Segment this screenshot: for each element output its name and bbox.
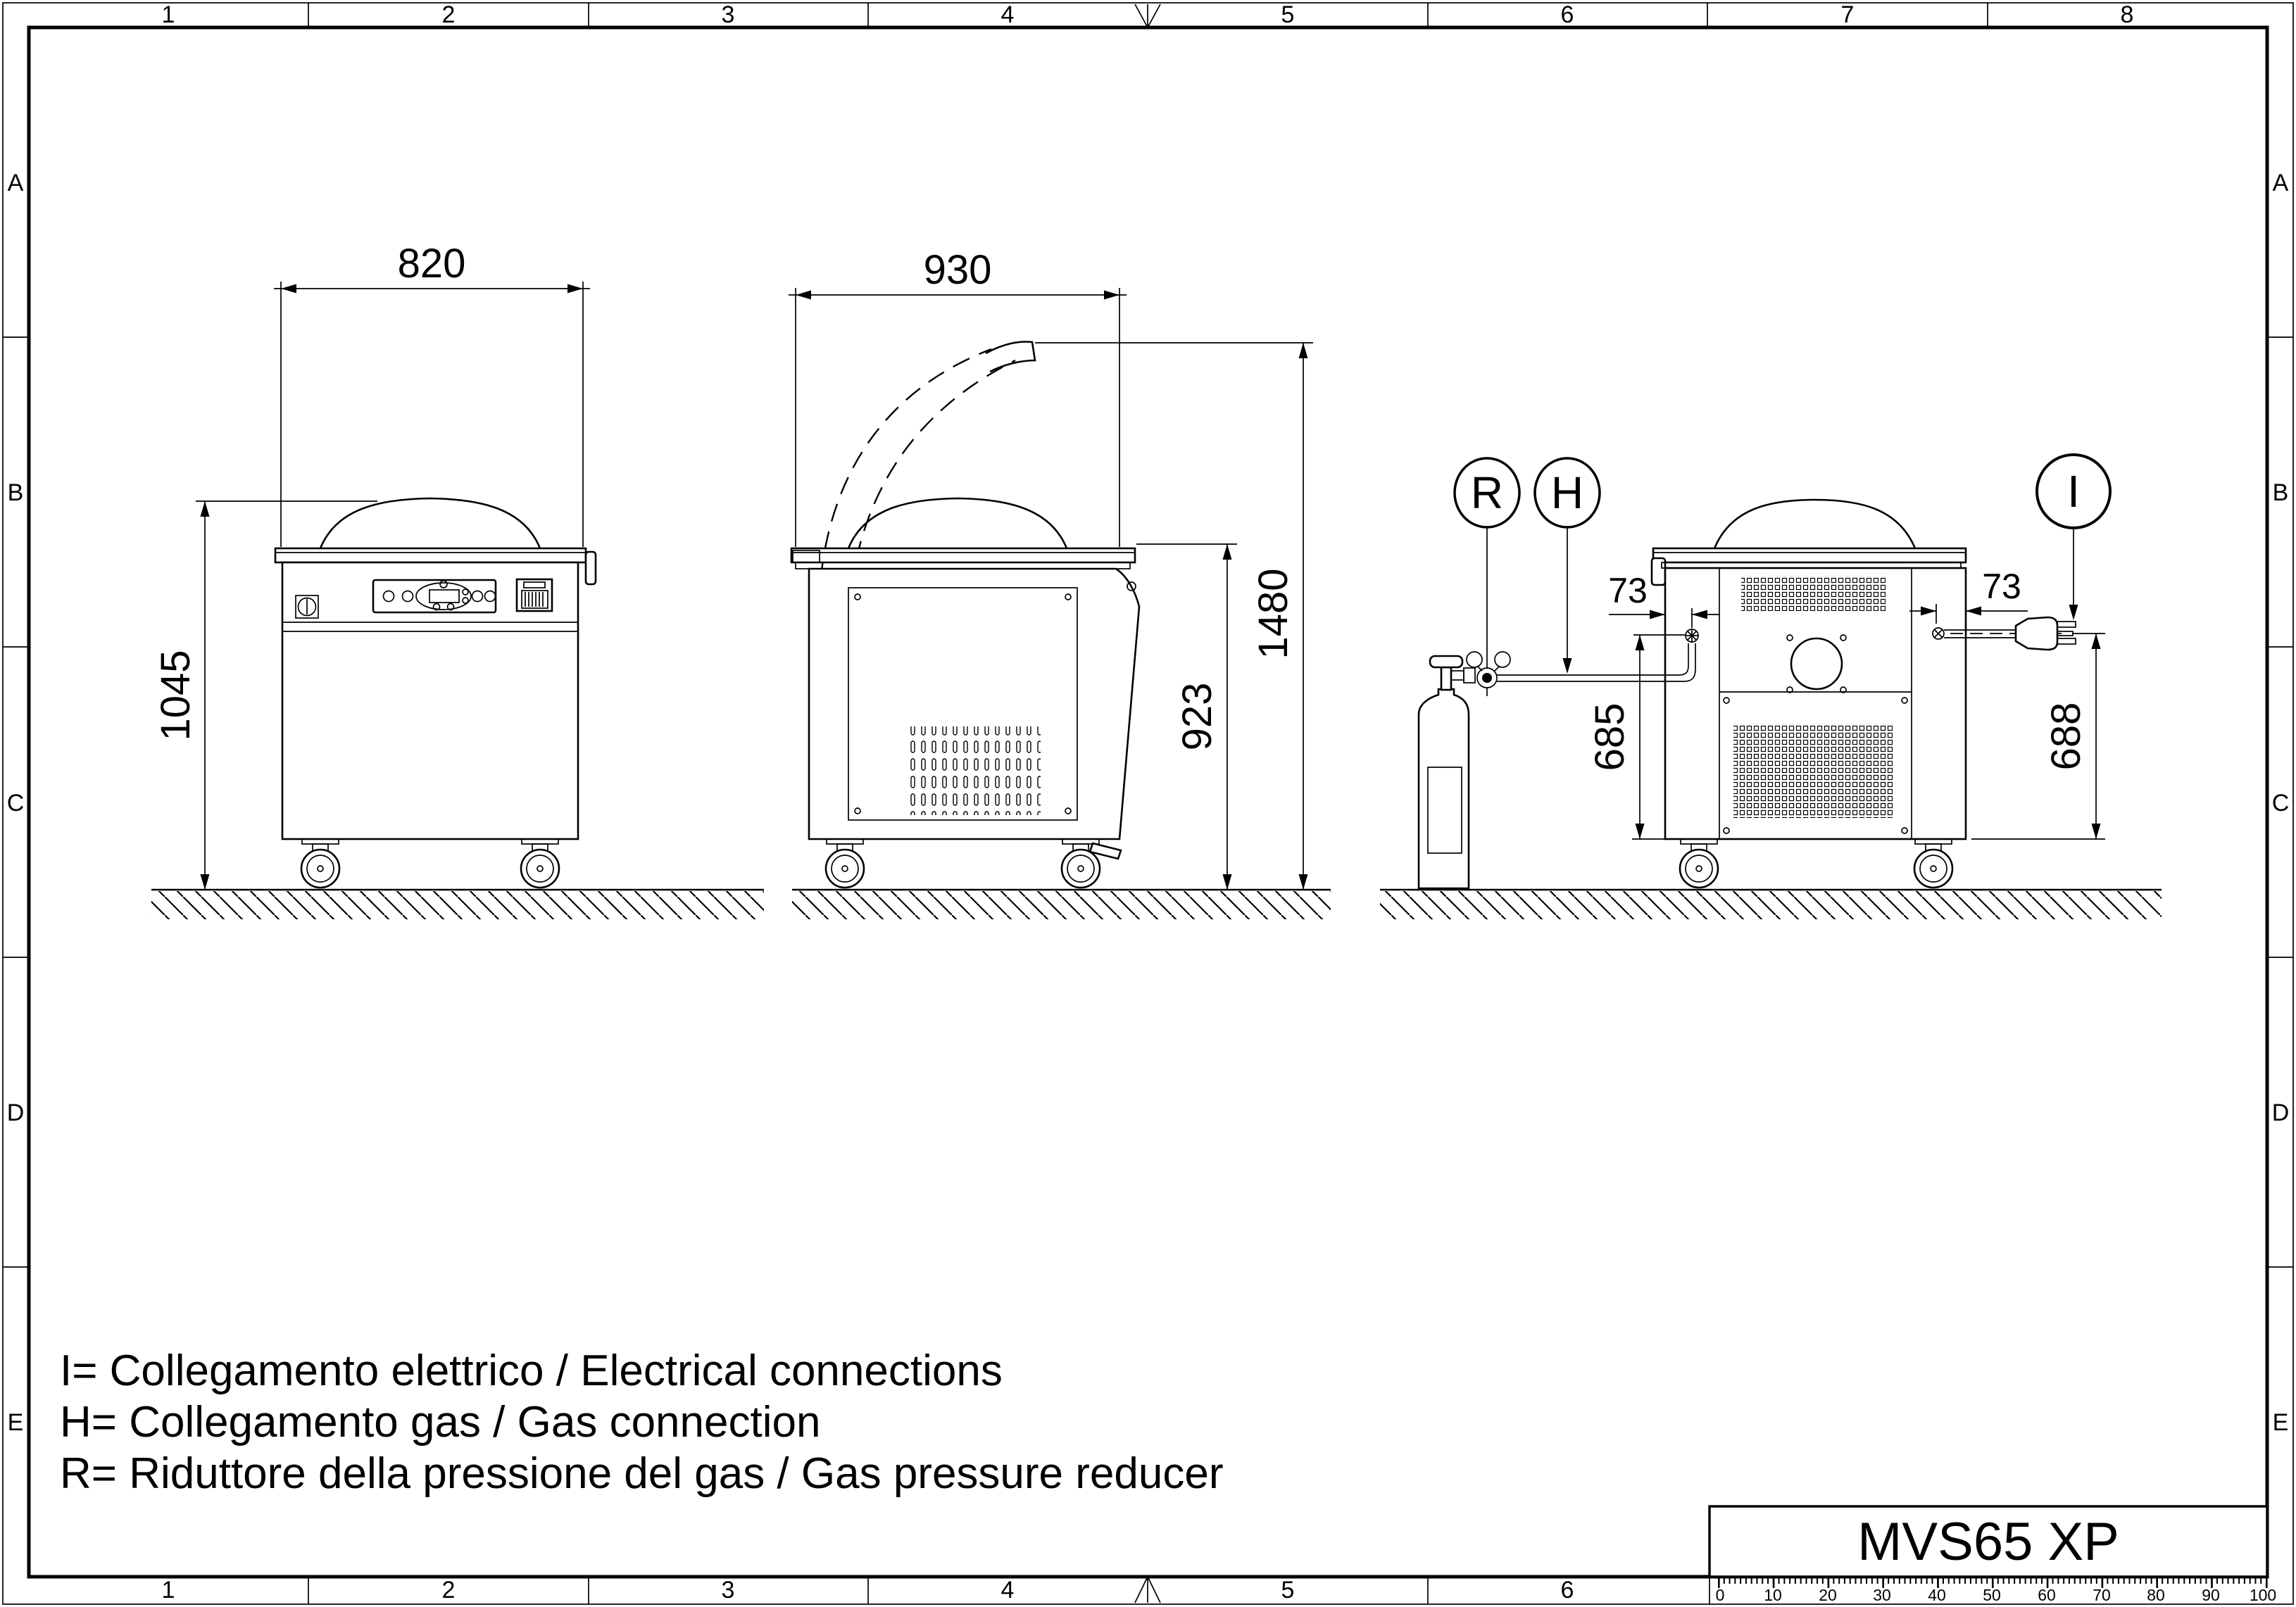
col-label-top-7: 7 [1841, 1, 1855, 28]
row-label-left-d: D [7, 1099, 25, 1126]
lid-dome [1714, 500, 1915, 548]
ruler-label: 30 [1873, 1586, 1891, 1604]
col-label-bottom-2: 2 [442, 1577, 456, 1603]
dim-front-height-label: 1045 [153, 650, 199, 741]
gauge [1495, 652, 1510, 667]
lid-dome [320, 498, 540, 548]
col-label-top-3: 3 [722, 1, 735, 28]
callout-r: R [1455, 458, 1519, 669]
col-label-top-6: 6 [1561, 1, 1574, 28]
dim-side-width: 930 [789, 247, 1127, 547]
caster [1680, 839, 1718, 888]
ruler-label: 70 [2093, 1586, 2111, 1604]
legend-line-electrical: I= Collegamento elettrico / Electrical c… [60, 1347, 1003, 1395]
rear-view: 73 73 685 688 [1497, 500, 2105, 888]
row-label-right-c: C [2272, 790, 2290, 817]
plug-prong [2057, 638, 2076, 644]
drawing-sheet: 1 2 3 4 5 6 7 8 1 2 3 4 5 6 A B C D E A … [0, 0, 2296, 1607]
pressure-reducer [1467, 652, 1510, 696]
technical-drawing: 1 2 3 4 5 6 7 8 1 2 3 4 5 6 A B C D E A … [0, 0, 2296, 1607]
dim-side-open-height-label: 1480 [1250, 568, 1296, 659]
dim-rear-power-height: 688 [1971, 634, 2105, 839]
caster [826, 839, 864, 888]
legend-line-gas: H= Collegamento gas / Gas connection [60, 1398, 820, 1447]
row-label-left-a: A [8, 170, 24, 196]
center-mark-top [1135, 4, 1160, 27]
rim-strip [796, 562, 1130, 569]
lid-dome [848, 498, 1067, 548]
vent-grid-top [1741, 576, 1886, 611]
ruler-label: 10 [1764, 1586, 1782, 1604]
legend-line-reducer: R= Riduttore della pressione del gas / G… [60, 1449, 1223, 1498]
callout-h: H [1535, 458, 1600, 674]
col-label-bottom-3: 3 [722, 1577, 735, 1603]
valve-handwheel [1430, 656, 1462, 667]
col-label-top-8: 8 [2121, 1, 2134, 28]
gas-cylinder [1419, 652, 1510, 888]
ruler-label: 80 [2147, 1586, 2165, 1604]
cylinder-valve [1441, 667, 1451, 690]
ground-hatch-front [151, 891, 764, 919]
col-label-top-1: 1 [162, 1, 175, 28]
lid-bar [275, 548, 586, 562]
outlet-nut [1464, 668, 1475, 683]
ground-lines [151, 890, 2162, 919]
ruler-label: 0 [1716, 1586, 1725, 1604]
col-label-bottom-6: 6 [1561, 1577, 1574, 1603]
col-label-top-2: 2 [442, 1, 456, 28]
plug-body [2016, 617, 2057, 650]
dim-side-closed-height: 923 [1136, 544, 1237, 890]
lid-handle [586, 552, 596, 584]
ground-hatch-side [792, 891, 1331, 919]
caster-with-brake [1062, 839, 1121, 888]
callout-i-label: I [2067, 466, 2080, 517]
row-label-right-a: A [2273, 170, 2289, 196]
gauge [1467, 652, 1482, 667]
callout-h-label: H [1551, 467, 1583, 518]
ruler-label: 50 [1983, 1586, 2001, 1604]
dim-rear-gas-offset-label: 73 [1608, 571, 1648, 610]
center-mark-bottom [1135, 1577, 1160, 1603]
callout-r-label: R [1471, 467, 1503, 518]
ruler-label: 60 [2038, 1586, 2056, 1604]
front-view: 820 1045 [153, 241, 596, 890]
row-label-left-e: E [8, 1409, 24, 1436]
side-view: 930 923 1480 [789, 247, 1313, 890]
legend: I= Collegamento elettrico / Electrical c… [60, 1347, 1223, 1498]
dim-rear-power-offset-label: 73 [1982, 567, 2021, 606]
caster [1914, 839, 1952, 888]
bottom-strip-dividers [308, 1577, 1428, 1604]
col-label-top-5: 5 [1281, 1, 1295, 28]
lid-bar [1653, 548, 1966, 562]
col-label-bottom-4: 4 [1001, 1577, 1015, 1603]
lid-bar [791, 548, 1135, 562]
col-label-top-4: 4 [1001, 1, 1015, 28]
plug-prong [2057, 622, 2076, 627]
ruler-label: 40 [1928, 1586, 1946, 1604]
scale-ruler: 0 10 20 30 40 50 60 70 80 90 100 [1716, 1580, 2277, 1604]
row-label-right-d: D [2272, 1099, 2290, 1126]
row-label-right-e: E [2273, 1409, 2289, 1436]
dim-side-width-label: 930 [924, 247, 992, 293]
caster [521, 839, 559, 888]
ruler-label: 20 [1819, 1586, 1837, 1604]
col-label-bottom-1: 1 [162, 1577, 175, 1603]
open-lid-edge [986, 342, 1035, 372]
row-label-left-c: C [7, 790, 25, 817]
dim-rear-power-height-label: 688 [2043, 702, 2089, 771]
model-name: MVS65 XP [1857, 1512, 2119, 1572]
callout-i: I [2037, 455, 2110, 620]
vent-slots [907, 726, 1041, 815]
col-label-bottom-5: 5 [1281, 1577, 1295, 1603]
vent-grid-bottom [1733, 724, 1893, 818]
caster [301, 839, 339, 888]
row-label-left-b: B [8, 479, 24, 506]
ruler-label: 100 [2250, 1586, 2276, 1604]
cabinet-body [282, 562, 578, 839]
dim-front-width-label: 820 [398, 241, 466, 286]
row-label-right-b: B [2273, 479, 2289, 506]
valve-outlet [1451, 671, 1464, 680]
ground-hatch-rear [1380, 891, 2162, 919]
dim-rear-gas-height-label: 685 [1587, 703, 1633, 771]
ruler-label: 90 [2202, 1586, 2220, 1604]
dim-side-closed-height-label: 923 [1174, 683, 1220, 751]
